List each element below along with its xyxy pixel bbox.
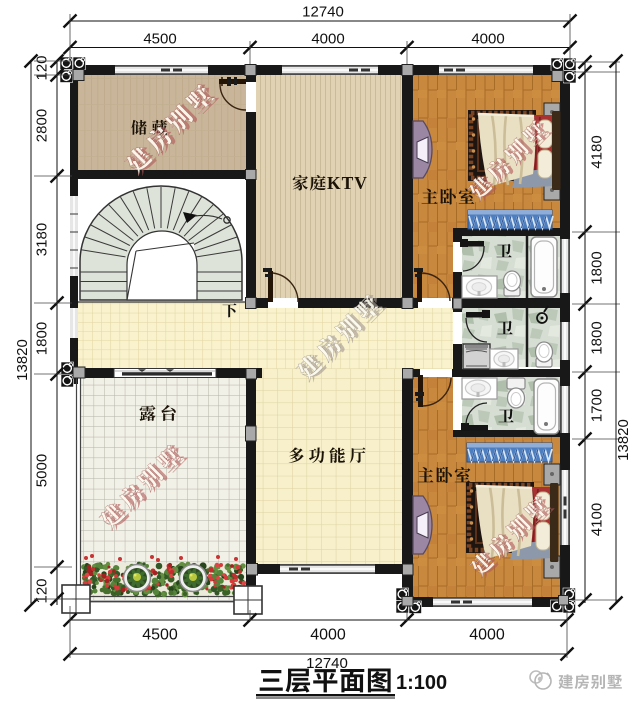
svg-text:4000: 4000 [469,627,505,644]
svg-text:12740: 12740 [302,4,344,21]
svg-text:120: 120 [34,578,51,603]
svg-text:4180: 4180 [589,135,606,168]
svg-text:4000: 4000 [471,31,504,48]
svg-text:2800: 2800 [34,109,51,142]
svg-text:1700: 1700 [589,389,606,422]
svg-text:1800: 1800 [34,322,51,355]
svg-text:3180: 3180 [34,223,51,256]
svg-text:4000: 4000 [311,31,344,48]
svg-text:120: 120 [34,55,51,80]
svg-text:5000: 5000 [34,454,51,487]
svg-text:4100: 4100 [589,503,606,536]
svg-text:1800: 1800 [589,321,606,354]
svg-text:1800: 1800 [589,251,606,284]
svg-text:4500: 4500 [143,31,176,48]
svg-text:4000: 4000 [310,627,346,644]
svg-text:1:100: 1:100 [396,672,447,694]
svg-text:4500: 4500 [142,627,178,644]
svg-text:KTV: KTV [327,173,368,193]
svg-text:13820: 13820 [615,419,632,461]
svg-text:13820: 13820 [14,339,31,381]
